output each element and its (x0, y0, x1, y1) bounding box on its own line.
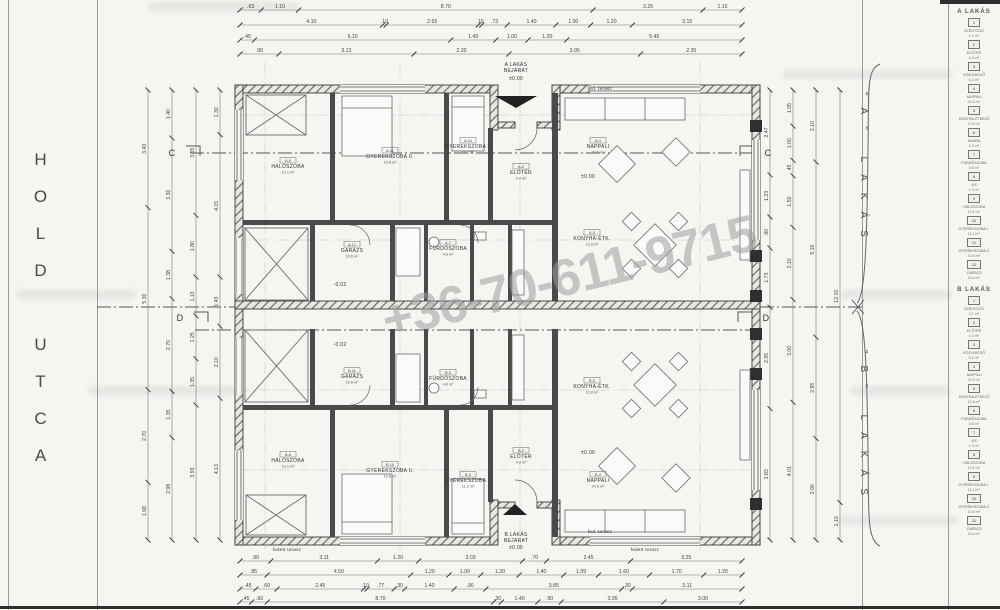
dim-value: 1.10 (275, 4, 285, 10)
dim-value: .30 (623, 583, 630, 589)
legend-room-name: HÁLÓSZOBA (963, 204, 985, 209)
legend-room-name: KONYHA-ÉTKEZŐ (959, 116, 990, 121)
room-number: B-6 (445, 371, 451, 375)
room-area: 11.2 m² (462, 151, 475, 155)
dim-value: 3.30 (166, 190, 172, 200)
room-area: 12.8 m² (586, 391, 600, 395)
dim-value: 1.40 (468, 34, 478, 40)
legend-number: 4 (968, 84, 980, 93)
legend-room-area: 10.8 m² (968, 253, 980, 258)
legend-room-area: 1.5 m² (969, 143, 979, 148)
room-area: 4.3 m² (516, 177, 527, 181)
room-schedule: A LAKÁS 1SZÉLFOGÓ2.1 m²2ELŐTÉR4.3 m²3KÖZ… (948, 0, 1000, 610)
dim-value: 1.20 (606, 19, 616, 25)
room-number: A-11 (386, 149, 394, 153)
room-number: A-12 (348, 243, 356, 247)
dim-value: .85 (250, 569, 257, 575)
dim-value: 3.11 (319, 555, 329, 561)
dim-value: 3.85 (549, 583, 559, 589)
legend-number: 10 (967, 494, 981, 503)
legend-room-area: 4.6 m² (969, 421, 979, 426)
legend-room-area: 11.2 m² (968, 487, 980, 492)
dim-value: 1.40 (526, 19, 536, 25)
room-number: B-4 (595, 473, 601, 477)
dim-value: 3.00 (698, 596, 708, 602)
room-label: HÁLÓSZOBA (271, 457, 305, 464)
room-label: FÜRDŐSZOBA (429, 245, 467, 252)
legend-room-name: GARÁZS (967, 270, 982, 275)
dim-value: .90 (256, 48, 263, 54)
legend-room-name: FÜRDŐSZOBA (961, 160, 986, 165)
room-label: C (169, 148, 176, 158)
legend-item: 2ELŐTÉR4.3 m² (957, 40, 991, 60)
room-area: 10.8 m² (384, 161, 398, 165)
legend-item: 5KONYHA-ÉTKEZŐ12.8 m² (957, 384, 991, 404)
room-label: GARÁZS (341, 373, 364, 380)
room-label: ELŐTÉR (510, 453, 532, 460)
room-label: BEJÁRAT (504, 537, 528, 544)
room-label: GYEREKSZOBA I. (445, 478, 491, 484)
legend-number: 11 (967, 238, 981, 247)
dim-value: 1.38 (166, 270, 172, 280)
legend-number: 10 (967, 216, 981, 225)
legend-room-name: KÖZLEKEDŐ (963, 350, 985, 355)
dim-value: 1.43 (214, 296, 220, 306)
dim-value: 1.23 (764, 191, 770, 201)
room-area: 4.6 m² (443, 253, 454, 257)
room-area: 19.6 m² (346, 255, 360, 259)
schedule-items-a: 1SZÉLFOGÓ2.1 m²2ELŐTÉR4.3 m²3KÖZLEKEDŐ6.… (957, 18, 991, 282)
legend-room-area: 4.3 m² (969, 55, 979, 60)
entrance-a-arrow (495, 96, 537, 108)
dim-value: 5.45 (649, 34, 659, 40)
dim-value: 1.73 (764, 272, 770, 282)
dim-value: 2.35 (686, 48, 696, 54)
room-label: GYEREKSZOBA II. (366, 154, 414, 160)
dim-value: 5.10 (810, 244, 816, 254)
dim-value: 3.03 (466, 555, 476, 561)
room-number: A-9 (285, 159, 291, 163)
room-number: A-5 (589, 231, 595, 235)
dim-value: .60 (256, 596, 263, 602)
legend-number: 7 (968, 428, 980, 437)
dim-value: .90 (764, 229, 770, 236)
dim-value: 1.20 (542, 34, 552, 40)
legend-room-area: 24.5 m² (968, 99, 980, 104)
room-label: D (177, 313, 184, 323)
dim-value: .30 (494, 596, 501, 602)
legend-item: 1SZÉLFOGÓ2.1 m² (957, 18, 991, 38)
legend-number: 11 (967, 516, 981, 525)
legend-room-area: 10.8 m² (968, 509, 980, 514)
legend-number: 4 (968, 362, 980, 371)
legend-room-area: 6.2 m² (969, 355, 979, 360)
legend-room-name: NAPPALI (967, 94, 982, 99)
legend-room-area: 13.1 m² (968, 209, 980, 214)
legend-item: 8WC1.5 m² (957, 172, 991, 192)
room-label: NAPPALI (587, 478, 610, 484)
dim-value: 1.40 (515, 596, 525, 602)
dim-value: 3.83 (764, 469, 770, 479)
legend-number: 1 (968, 18, 980, 27)
legend-room-name: KONYHA-ÉTKEZŐ (959, 394, 990, 399)
legend-room-area: 4.6 m² (969, 165, 979, 170)
room-label: GYEREKSZOBA I. (445, 144, 491, 150)
dim-value: 1.20 (718, 569, 728, 575)
room-label: ±0.00 (581, 450, 595, 456)
dim-value: 3.93 (190, 467, 196, 477)
room-label: ELŐTÉR (510, 169, 532, 176)
dim-value: 12.10 (834, 290, 840, 303)
dim-value: 2.20 (456, 48, 466, 54)
legend-number: 2 (968, 40, 980, 49)
dim-value: 3.65 (190, 147, 196, 157)
room-label: ±0.00 (509, 545, 523, 551)
legend-item: 9GYEREKSZOBA I.11.2 m² (957, 472, 991, 492)
room-area: 4.6 m² (443, 383, 454, 387)
legend-item: 11GARÁZS19.6 m² (957, 516, 991, 536)
legend-room-area: 19.6 m² (968, 531, 980, 536)
dim-value: 1.20 (425, 569, 435, 575)
dim-value: 1.40 (166, 109, 172, 119)
dim-value: 1.40 (536, 569, 546, 575)
dim-value: 2.70 (142, 431, 148, 441)
room-label: B LAKÁS (505, 531, 528, 538)
floorplan-sheet: HOLD UTCA "A" LAKÁS "B" LAKÁS (0, 0, 1000, 610)
dim-value: 2.45 (583, 555, 593, 561)
dim-value: 1.35 (166, 409, 172, 419)
dim-value: 1.15 (717, 4, 727, 10)
dim-value: .77 (377, 583, 384, 589)
dim-value: 2.96 (810, 484, 816, 494)
dim-value: 1.00 (507, 34, 517, 40)
legend-number: 3 (968, 62, 980, 71)
legend-item: 7FÜRDŐSZOBA4.6 m² (957, 150, 991, 170)
dim-value: 2.10 (810, 121, 816, 131)
room-label: -0.02 (334, 282, 347, 288)
schedule-items-b: 1SZÉLFOGÓ2.1 m²2ELŐTÉR4.3 m²3KÖZLEKEDŐ6.… (957, 296, 991, 538)
dim-value: 2.98 (166, 484, 172, 494)
legend-room-name: WC (971, 182, 977, 187)
legend-room-name: GYEREKSZOBA I. (959, 226, 989, 231)
legend-item: 7WC1.5 m² (957, 428, 991, 448)
room-area: 13.1 m² (282, 171, 296, 175)
legend-room-name: NAPPALI (967, 372, 982, 377)
schedule-header-b: B LAKÁS (957, 287, 991, 293)
room-label: -0.02 (334, 342, 347, 348)
dim-value: 1.50 (787, 196, 793, 206)
dim-value: .73 (491, 19, 498, 25)
dim-value: 3.43 (142, 144, 148, 154)
room-label: A LAKÁS (505, 61, 528, 68)
dim-value: .90 (546, 596, 553, 602)
dim-value: 8.70 (375, 596, 385, 602)
dim-value: 1.60 (619, 569, 629, 575)
dim-value: .70 (531, 555, 538, 561)
legend-room-name: ELŐTÉR (967, 50, 981, 55)
dim-value: 8.70 (441, 4, 451, 10)
dim-value: 1.35 (190, 377, 196, 387)
dim-value: 2.10 (787, 258, 793, 268)
dim-value: 3.00 (787, 346, 793, 356)
room-label: KONYHA-ÉTK. (573, 383, 610, 390)
legend-room-area: 6.2 m² (969, 77, 979, 82)
legend-item: 6KAMRA1.5 m² (957, 128, 991, 148)
dim-value: 3.13 (341, 48, 351, 54)
dim-value: 1.30 (214, 107, 220, 117)
legend-number: 9 (968, 472, 980, 481)
legend-item: 8HÁLÓSZOBA13.1 m² (957, 450, 991, 470)
dim-value: 2.65 (427, 19, 437, 25)
legend-room-name: ELŐTÉR (967, 328, 981, 333)
dim-value: 2.95 (810, 383, 816, 393)
x-boxes (245, 95, 308, 535)
legend-number: 8 (968, 450, 980, 459)
legend-number: 6 (968, 128, 980, 137)
legend-room-name: HÁLÓSZOBA (963, 460, 985, 465)
dim-value: .90 (466, 583, 473, 589)
legend-number: 1 (968, 296, 980, 305)
legend-item: 3KÖZLEKEDŐ6.2 m² (957, 62, 991, 82)
room-number: B-11 (348, 369, 356, 373)
dim-value: 3.95 (608, 596, 618, 602)
legend-item: 2ELŐTÉR4.3 m² (957, 318, 991, 338)
dim-value: 3.05 (570, 48, 580, 54)
legend-room-name: SZÉLFOGÓ (964, 306, 984, 311)
dim-value: .30 (396, 583, 403, 589)
room-number: B-9 (465, 473, 471, 477)
legend-room-name: SZÉLFOGÓ (964, 28, 984, 33)
dim-value: 1.13 (190, 291, 196, 301)
legend-room-area: 1.5 m² (969, 443, 979, 448)
legend-room-area: 12.8 m² (968, 121, 980, 126)
dim-value: 1.00 (787, 138, 793, 148)
legend-room-name: KÖZLEKEDŐ (963, 72, 985, 77)
legend-room-name: GYEREKSZOBA II. (958, 248, 989, 253)
legend-item: 5KONYHA-ÉTKEZŐ12.8 m² (957, 106, 991, 126)
room-label: ±0.00 (581, 174, 595, 180)
dim-value: .60 (263, 583, 270, 589)
legend-item: 3KÖZLEKEDŐ6.2 m² (957, 340, 991, 360)
dim-value: 1.80 (190, 241, 196, 251)
dim-value: .45 (242, 596, 249, 602)
dim-value: 4.01 (787, 466, 793, 476)
legend-room-area: 1.5 m² (969, 187, 979, 192)
room-area: 19.6 m² (346, 381, 360, 385)
dim-value: 1.40 (424, 583, 434, 589)
dim-value: 1.20 (495, 569, 505, 575)
legend-number: 12 (967, 260, 981, 269)
room-area: 11.2 m² (462, 485, 475, 489)
dim-value: .45 (244, 34, 251, 40)
dim-value: 1.00 (460, 569, 470, 575)
legend-item: 10GYEREKSZOBA II.10.8 m² (957, 494, 991, 514)
dim-value: 1.68 (142, 506, 148, 516)
legend-room-area: 12.8 m² (968, 399, 980, 404)
dim-value: 4.15 (214, 201, 220, 211)
room-label: fed. terasz (588, 86, 613, 91)
room-number: B-2 (518, 449, 524, 453)
dim-value: 2.45 (315, 583, 325, 589)
room-number: A-7 (445, 241, 451, 245)
dim-value: 2.70 (166, 340, 172, 350)
legend-item: 10GYEREKSZOBA I.11.2 m² (957, 216, 991, 236)
legend-room-name: GYEREKSZOBA I. (959, 482, 989, 487)
legend-item: 4NAPPALI24.5 m² (957, 362, 991, 382)
dim-value: 1.05 (787, 103, 793, 113)
legend-room-name: WC (971, 438, 977, 443)
legend-number: 8 (968, 172, 980, 181)
dim-value: .45 (244, 583, 251, 589)
dim-value: 4.10 (306, 19, 316, 25)
dim-value: 1.00 (568, 19, 578, 25)
dim-value: 2.95 (764, 353, 770, 363)
room-area: 13.1 m² (282, 465, 296, 469)
dim-value: .90 (252, 555, 259, 561)
legend-room-area: 2.1 m² (969, 311, 979, 316)
legend-room-area: 19.6 m² (968, 275, 980, 280)
legend-item: 4NAPPALI24.5 m² (957, 84, 991, 104)
legend-number: 5 (968, 106, 980, 115)
room-label: fedett terasz (631, 547, 660, 552)
room-label: HÁLÓSZOBA (271, 163, 305, 170)
dim-value: 2.47 (764, 127, 770, 137)
room-area: 10.8 m² (384, 475, 398, 479)
room-label: GARÁZS (341, 247, 364, 254)
dim-value: 4.13 (214, 464, 220, 474)
legend-number: 2 (968, 318, 980, 327)
legend-number: 3 (968, 340, 980, 349)
dim-value: 3.25 (681, 555, 691, 561)
dim-value: 6.10 (348, 34, 358, 40)
dim-value: 3.11 (682, 583, 692, 589)
room-area: 24.5 m² (592, 151, 606, 155)
legend-room-name: GARÁZS (967, 526, 982, 531)
room-label: BEJÁRAT (504, 67, 528, 74)
dim-value: 1.70 (672, 569, 682, 575)
dim-value: 1.09 (576, 569, 586, 575)
legend-room-area: 13.1 m² (968, 465, 980, 470)
legend-item: 12GARÁZS19.6 m² (957, 260, 991, 280)
room-label: fed. terasz (588, 529, 613, 534)
legend-item: 1SZÉLFOGÓ2.1 m² (957, 296, 991, 316)
legend-room-area: 11.2 m² (968, 231, 980, 236)
room-area: 4.3 m² (516, 461, 527, 465)
room-label: NAPPALI (587, 144, 610, 150)
unit-braces (852, 64, 880, 546)
room-number: B-8 (285, 453, 291, 457)
dim-value: .63 (247, 4, 254, 10)
legend-room-name: GYEREKSZOBA II. (958, 504, 989, 509)
dim-value: 5.30 (142, 294, 148, 304)
legend-item: 6FÜRDŐSZOBA4.6 m² (957, 406, 991, 426)
legend-number: 5 (968, 384, 980, 393)
dim-value: 3.25 (643, 4, 653, 10)
legend-room-area: 4.3 m² (969, 333, 979, 338)
room-number: B-10 (386, 463, 394, 467)
room-label: fedett terasz (273, 547, 302, 552)
legend-number: 6 (968, 406, 980, 415)
room-label: D (763, 313, 770, 323)
legend-item: 11GYEREKSZOBA II.10.8 m² (957, 238, 991, 258)
legend-room-name: KAMRA (968, 138, 981, 143)
legend-room-name: FÜRDŐSZOBA (961, 416, 986, 421)
dim-value: 1.25 (190, 332, 196, 342)
legend-room-area: 2.1 m² (969, 33, 979, 38)
room-number: B-5 (589, 379, 595, 383)
room-number: A-2 (518, 165, 524, 169)
dim-value: .45 (787, 164, 793, 171)
room-label: C (765, 148, 772, 158)
legend-room-area: 24.5 m² (968, 377, 980, 382)
legend-number: 7 (968, 150, 980, 159)
legend-number: 9 (968, 194, 980, 203)
dim-value: 3.15 (682, 19, 692, 25)
legend-item: 9HÁLÓSZOBA13.1 m² (957, 194, 991, 214)
dim-value: 1.10 (834, 516, 840, 526)
room-label: FÜRDŐSZOBA (429, 375, 467, 382)
room-label: GYEREKSZOBA II. (366, 468, 414, 474)
room-area: 24.5 m² (592, 485, 606, 489)
dim-value: 4.50 (334, 569, 344, 575)
room-number: A-4 (595, 139, 601, 143)
dim-value: 1.20 (393, 555, 403, 561)
room-label: ±0.00 (509, 76, 523, 82)
room-number: A-10 (464, 139, 472, 143)
schedule-header-a: A LAKÁS (957, 9, 990, 15)
dim-value: 2.10 (214, 357, 220, 367)
